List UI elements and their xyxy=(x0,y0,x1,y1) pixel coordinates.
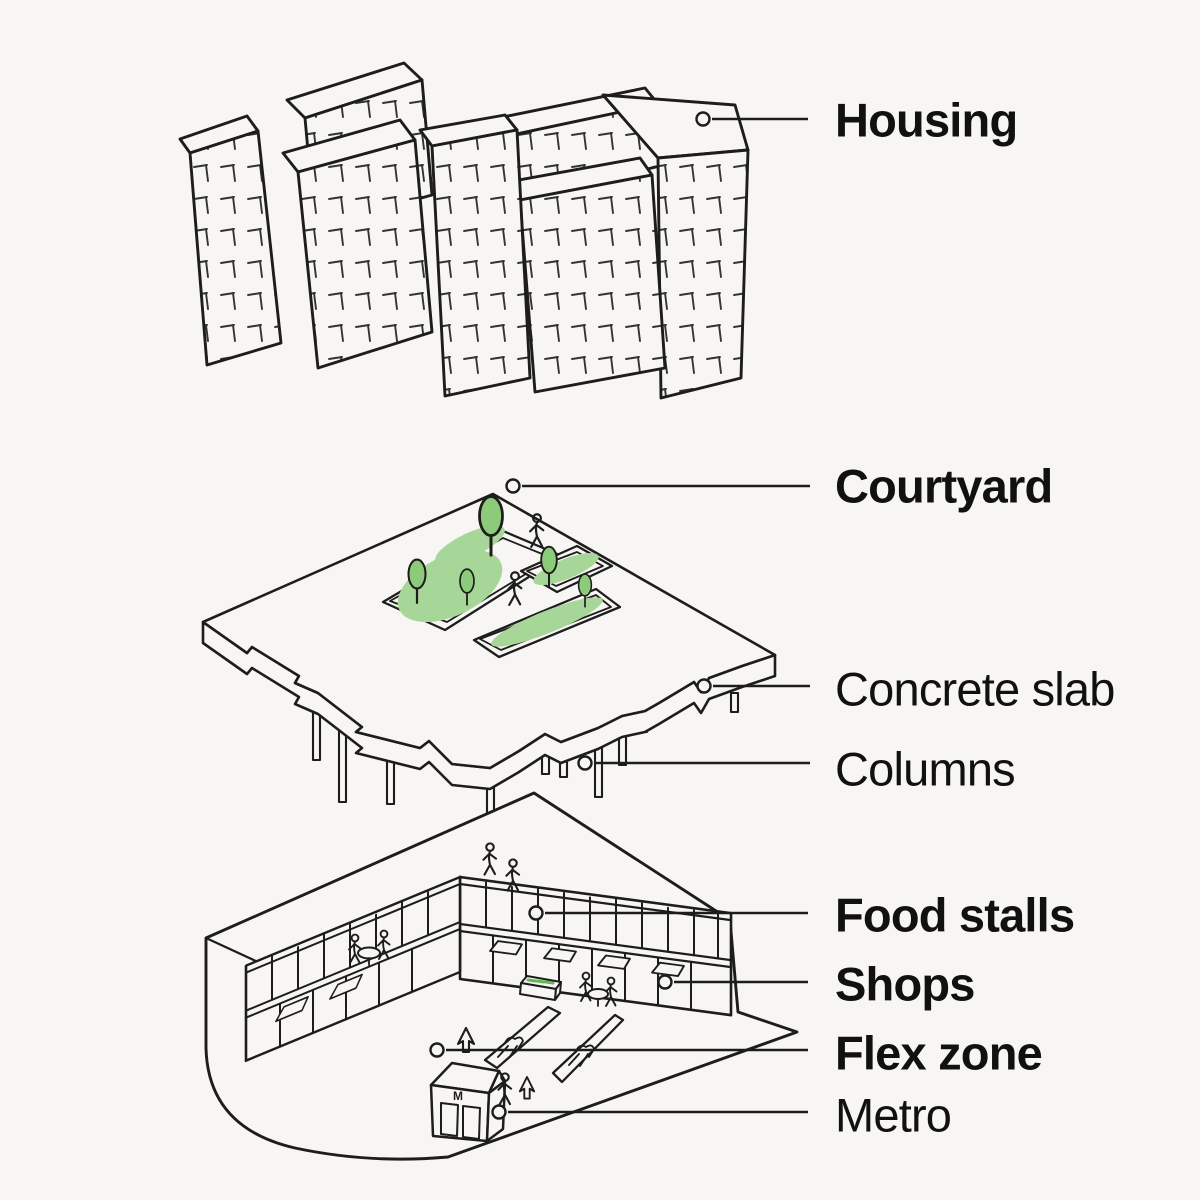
label-food-stalls: Food stalls xyxy=(835,892,1074,939)
courtyard-sketch xyxy=(203,494,775,820)
label-shops: Shops xyxy=(835,961,975,1008)
label-columns: Columns xyxy=(835,746,1015,793)
diagram-drawing: M xyxy=(0,0,1200,1200)
label-courtyard: Courtyard xyxy=(835,463,1052,510)
label-housing: Housing xyxy=(835,97,1017,144)
leader-columns xyxy=(579,757,811,770)
label-concrete-slab: Concrete slab xyxy=(835,666,1115,713)
metro-kiosk: M xyxy=(431,1063,505,1141)
label-flex-zone: Flex zone xyxy=(835,1030,1042,1077)
metro-sign: M xyxy=(453,1089,463,1103)
housing-sketch xyxy=(180,63,748,398)
label-metro: Metro xyxy=(835,1092,951,1139)
leader-courtyard xyxy=(507,480,811,493)
exploded-axonometric-diagram: M xyxy=(0,0,1200,1200)
podium-sketch: M xyxy=(206,793,797,1159)
